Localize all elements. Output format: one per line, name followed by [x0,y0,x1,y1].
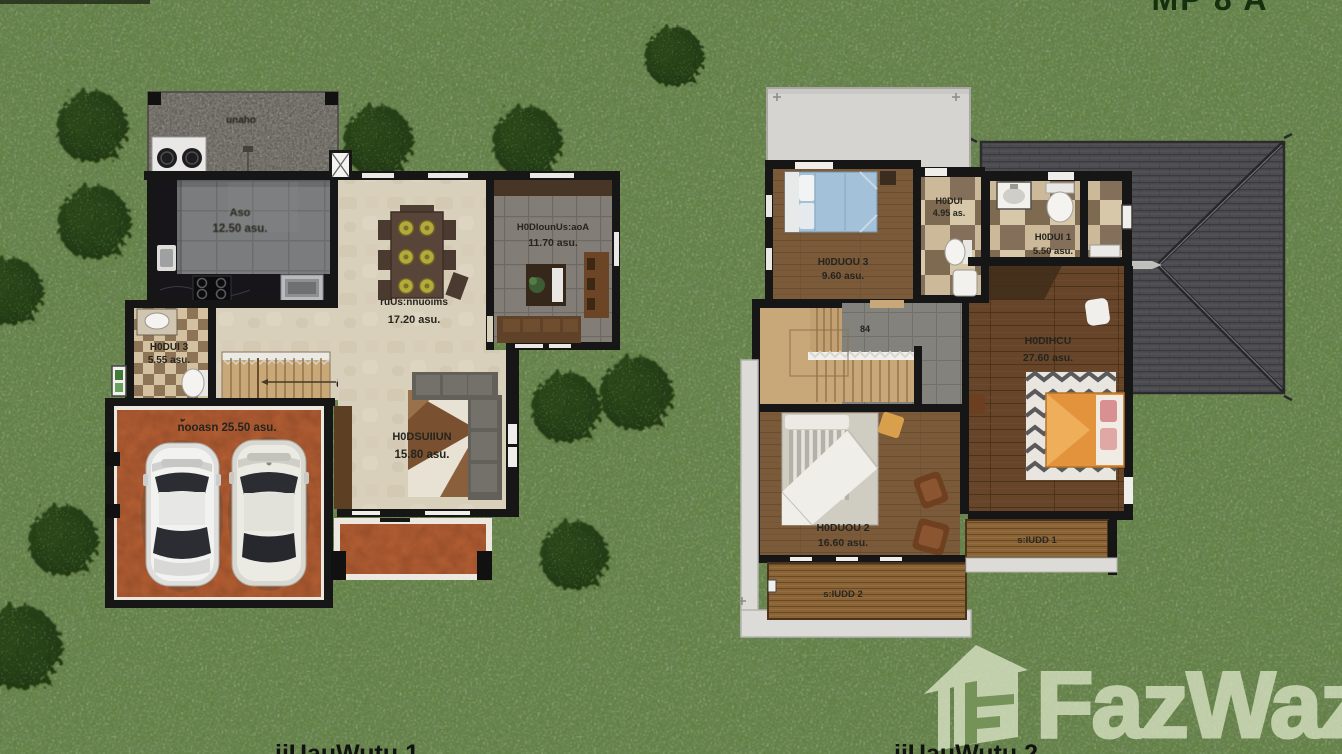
svg-text:iiUauWutu 2: iiUauWutu 2 [894,740,1038,754]
svg-text:27.60 asu.: 27.60 asu. [1023,352,1073,364]
svg-text:MP 8 A: MP 8 A [1152,0,1269,17]
svg-text:s:IUDD 1: s:IUDD 1 [1017,535,1057,546]
svg-text:iiUauWutu 1: iiUauWutu 1 [275,740,419,754]
svg-text:17.20 asu.: 17.20 asu. [388,314,441,326]
svg-text:FazWaz: FazWaz [1036,652,1342,754]
svg-text:H0DUI 1: H0DUI 1 [1035,232,1072,243]
svg-text:84: 84 [860,324,870,334]
svg-text:9.60 asu.: 9.60 asu. [822,271,864,282]
svg-text:5.50 asu.: 5.50 asu. [1033,246,1073,257]
svg-text:H0DUOU 3: H0DUOU 3 [818,257,869,268]
svg-text:Aso: Aso [230,207,251,219]
svg-text:unaho: unaho [226,115,256,126]
svg-text:4.95 as.: 4.95 as. [933,208,966,218]
svg-text:s:IUDD 2: s:IUDD 2 [823,589,863,600]
svg-text:ruUs:nnuoims: ruUs:nnuoims [380,297,448,308]
svg-text:15.80 asu.: 15.80 asu. [395,449,450,461]
svg-text:H0DUI 3: H0DUI 3 [150,342,189,353]
svg-text:5.55 asu.: 5.55 asu. [148,355,190,366]
svg-text:H0DIounUs:aoA: H0DIounUs:aoA [517,222,589,233]
svg-text:H0DSUIIUN: H0DSUIIUN [392,431,451,443]
svg-text:11.70 asu.: 11.70 asu. [528,237,578,249]
svg-text:H0DUOU 2: H0DUOU 2 [816,522,869,534]
svg-text:12.50 asu.: 12.50 asu. [213,223,268,235]
svg-text:H0DUI: H0DUI [935,196,962,206]
svg-text:16.60 asu.: 16.60 asu. [818,537,868,549]
svg-text:H0DIHCU: H0DIHCU [1025,335,1072,347]
